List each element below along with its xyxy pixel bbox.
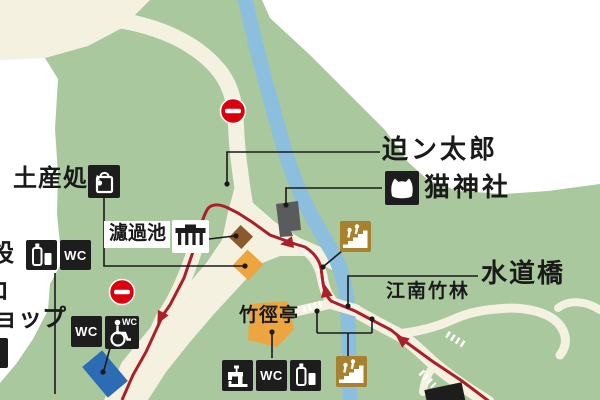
shopping-bag-icon	[88, 165, 120, 198]
leader-dot	[345, 303, 350, 308]
label-neko-jinja: 猫神社	[424, 174, 511, 201]
no-entry-sign	[221, 99, 246, 124]
leader-dot	[100, 369, 105, 374]
clipped-facility-icon	[0, 338, 8, 368]
drinking-fountain-icon	[222, 360, 253, 391]
leader-dot	[224, 181, 229, 186]
no-entry-sign	[110, 280, 135, 305]
stairs-icon	[340, 221, 371, 252]
label-rokachi: 濾過池	[104, 221, 170, 248]
wc-icon: WC	[60, 240, 91, 270]
label-suido-bashi: 水道橋	[481, 260, 565, 287]
label-partial-ro: ロ	[0, 279, 9, 304]
wc-label: WC	[75, 324, 98, 339]
wc-label: WC	[260, 368, 283, 383]
label-partial-shop: ョップ	[0, 306, 66, 331]
leader-dot	[283, 202, 288, 207]
tourist-map: 迫ン太郎 猫神社 土産処 濾過池 水道橋 江南竹林 竹徑亭 設 ロ ョップ WC…	[0, 0, 600, 400]
label-chikukei-tei: 竹徑亭	[239, 306, 299, 326]
filtration-structure-icon	[172, 220, 209, 253]
stairs-icon	[336, 356, 367, 387]
wc-icon: WC	[71, 316, 102, 347]
label-konan-chikurin: 江南竹林	[386, 282, 470, 302]
label-miyage-dokoro: 土産処	[13, 166, 88, 191]
label-partial-setsu: 設	[0, 241, 14, 266]
wc-label: WC	[64, 248, 87, 263]
cat-icon	[385, 171, 419, 205]
bottled-drink-icon	[290, 360, 321, 391]
leader-dot	[314, 308, 319, 313]
leader-dot	[320, 264, 325, 269]
wc-icon: WC	[256, 360, 287, 391]
bottled-drink-icon	[26, 240, 57, 270]
leader-dot	[269, 329, 274, 334]
label-sakon-taro: 迫ン太郎	[382, 136, 498, 163]
leader-dot	[242, 263, 247, 268]
wheelchair-wc-icon: WC	[105, 316, 139, 349]
leader-dot	[233, 233, 238, 238]
leader-dot	[369, 316, 374, 321]
